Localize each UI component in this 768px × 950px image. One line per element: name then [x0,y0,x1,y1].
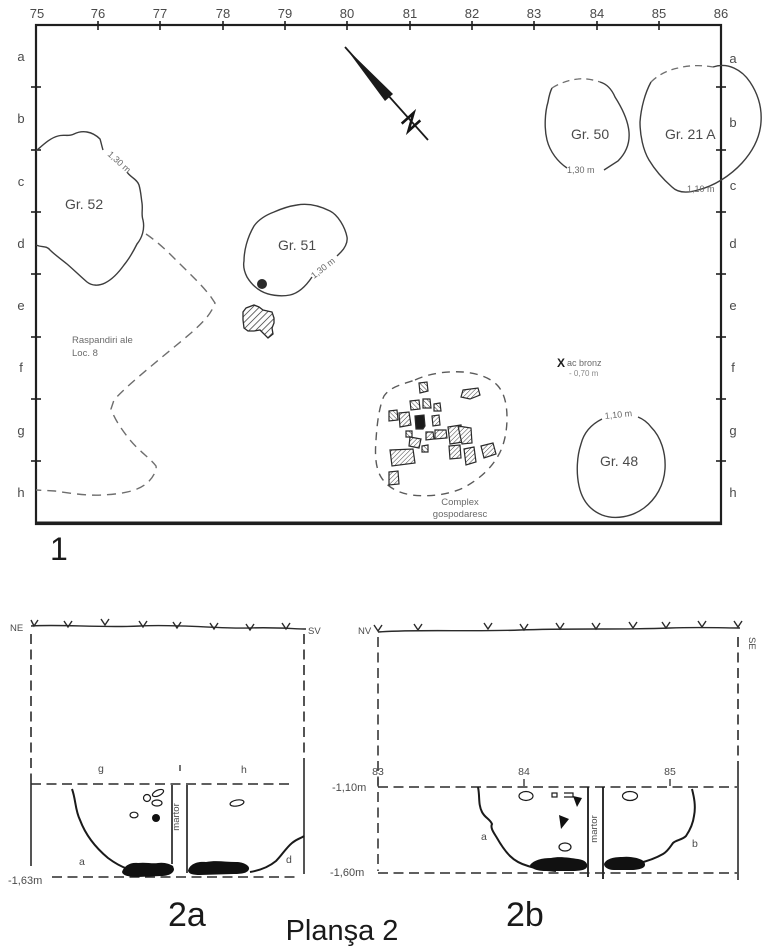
svg-text:82: 82 [465,6,479,21]
svg-text:h: h [241,764,247,776]
svg-text:SV: SV [308,626,321,637]
svg-text:76: 76 [91,6,105,21]
svg-text:b: b [729,115,736,130]
svg-text:Gr. 51: Gr. 51 [278,237,316,253]
svg-text:NE: NE [10,623,23,634]
svg-text:d: d [286,854,292,866]
svg-text:83: 83 [527,6,541,21]
svg-text:ac bronz: ac bronz [567,358,602,368]
svg-text:f: f [731,360,735,375]
svg-text:-1,63m: -1,63m [8,875,42,887]
svg-text:g: g [98,763,104,775]
svg-text:c: c [18,174,25,189]
svg-text:martor: martor [589,815,600,842]
svg-text:- 0,70 m: - 0,70 m [569,369,599,378]
svg-text:c: c [730,178,737,193]
svg-text:b: b [692,838,698,850]
svg-text:Gr. 21 A: Gr. 21 A [665,126,716,142]
svg-text:b: b [17,111,24,126]
svg-text:martor: martor [171,803,182,830]
svg-text:Raspandiri ale: Raspandiri ale [72,335,133,346]
svg-text:e: e [729,298,736,313]
svg-text:86: 86 [714,6,728,21]
svg-text:75: 75 [30,6,44,21]
svg-text:-1,60m: -1,60m [330,867,364,879]
svg-text:83: 83 [372,766,384,778]
svg-text:Planşa 2: Planşa 2 [286,915,399,947]
svg-text:85: 85 [652,6,666,21]
svg-text:a: a [729,51,737,66]
svg-text:g: g [17,423,24,438]
svg-text:gospodaresc: gospodaresc [433,509,488,520]
svg-text:a: a [17,49,25,64]
svg-text:78: 78 [216,6,230,21]
svg-text:85: 85 [664,766,676,778]
svg-text:a: a [481,831,487,843]
svg-text:h: h [729,485,736,500]
svg-text:84: 84 [518,766,530,778]
svg-text:84: 84 [590,6,604,21]
svg-text:d: d [729,236,736,251]
svg-text:X: X [557,356,565,370]
svg-text:1,10 m: 1,10 m [687,184,715,194]
svg-text:1: 1 [50,531,68,567]
svg-text:NV: NV [358,626,372,637]
svg-text:79: 79 [278,6,292,21]
svg-text:Gr. 48: Gr. 48 [600,453,638,469]
svg-text:1,30 m: 1,30 m [567,165,595,175]
svg-text:Complex: Complex [441,497,479,508]
svg-text:SE: SE [746,637,757,650]
svg-text:Gr. 52: Gr. 52 [65,196,103,212]
svg-text:2b: 2b [506,896,544,934]
svg-text:-1,10m: -1,10m [332,782,366,794]
svg-text:Loc. 8: Loc. 8 [72,348,98,359]
svg-text:a: a [79,856,85,868]
svg-text:81: 81 [403,6,417,21]
svg-text:Gr. 50: Gr. 50 [571,126,609,142]
svg-text:d: d [17,236,24,251]
svg-text:g: g [729,423,736,438]
svg-text:77: 77 [153,6,167,21]
svg-text:e: e [17,298,24,313]
svg-text:f: f [19,360,23,375]
svg-text:80: 80 [340,6,354,21]
svg-text:h: h [17,485,24,500]
svg-text:2a: 2a [168,896,206,934]
